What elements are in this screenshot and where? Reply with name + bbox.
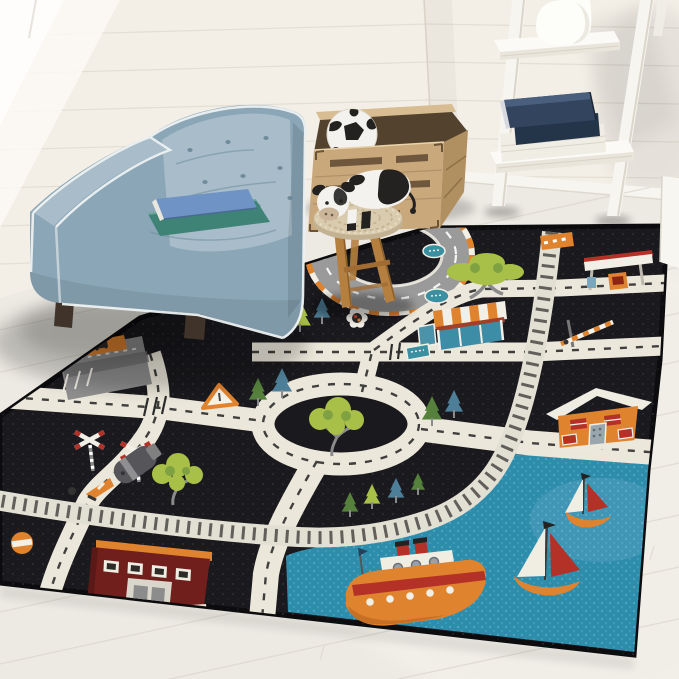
teal-sign [423,245,445,258]
do-not-enter-sign [10,531,34,555]
teal-sign [425,289,449,303]
ladder-foot-shadow [484,207,520,217]
shelf-books [500,92,606,162]
side-panel [660,176,679,268]
playroom-photo [0,0,679,679]
cow-muzzle [319,208,339,221]
stool-shadow [310,293,414,319]
vase [536,0,591,45]
scene-canvas [0,0,679,679]
cow-leg [361,211,371,229]
